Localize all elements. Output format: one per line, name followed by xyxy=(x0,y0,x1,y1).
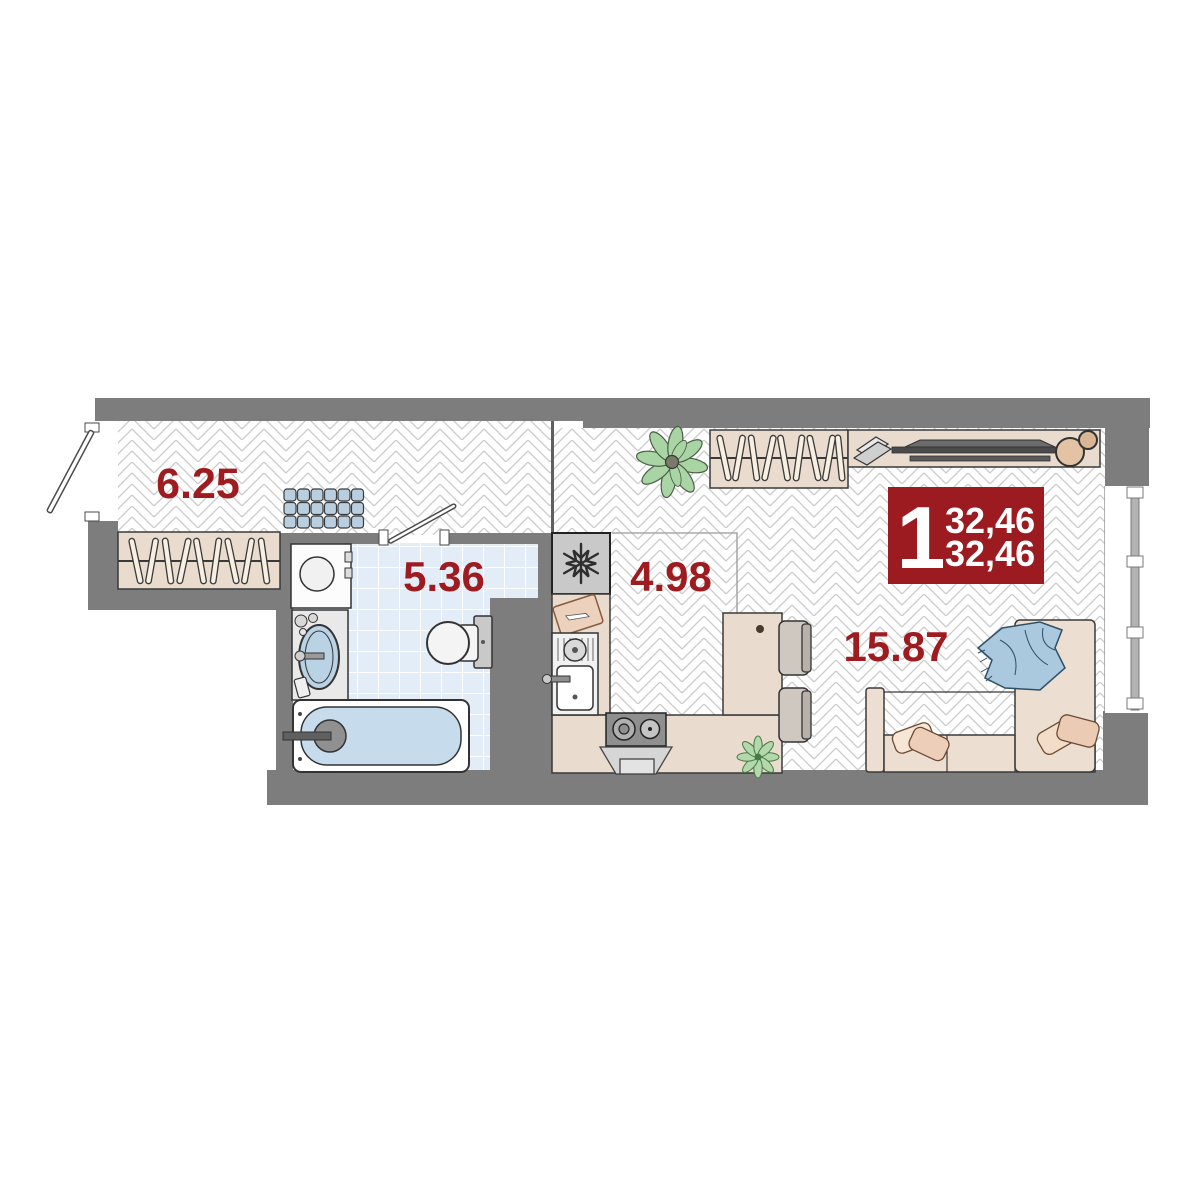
door-frame-tick xyxy=(85,512,99,521)
soap-dish xyxy=(300,629,307,636)
tv-console xyxy=(848,430,1100,467)
stove xyxy=(606,713,666,746)
dining-chair xyxy=(779,621,811,675)
window-frame xyxy=(1131,489,1139,710)
plant-icon xyxy=(737,736,779,778)
floor-plan-drawing: 1 32,46 32,46 6.25 5.36 4.98 15.87 xyxy=(0,0,1200,1200)
door-frame-tick xyxy=(440,530,449,545)
room-label-kitchen: 4.98 xyxy=(630,553,712,600)
soap-dish xyxy=(309,614,318,623)
bathtub xyxy=(283,700,469,772)
room-label-hallway: 6.25 xyxy=(156,460,240,508)
dining-table xyxy=(723,613,782,715)
window xyxy=(1105,486,1149,713)
coat-rack xyxy=(118,532,280,589)
entry-door-leaf xyxy=(47,430,95,514)
soap-dish xyxy=(295,615,307,627)
floor-plan: 1 32,46 32,46 6.25 5.36 4.98 15.87 xyxy=(0,0,1200,1200)
refrigerator xyxy=(552,533,610,594)
dining-chair xyxy=(779,688,811,742)
tv xyxy=(892,440,1068,461)
tub-faucet xyxy=(283,732,331,740)
wardrobe xyxy=(710,430,848,488)
washing-machine xyxy=(291,544,352,608)
room-label-living: 15.87 xyxy=(843,623,948,670)
badge-area-living: 32,46 xyxy=(945,533,1035,574)
table-knob xyxy=(756,625,764,633)
sofa-armrest xyxy=(866,688,884,772)
room-label-bathroom: 5.36 xyxy=(403,553,485,600)
badge-rooms-count: 1 xyxy=(897,488,946,587)
door-frame-tick xyxy=(379,530,388,545)
entry-door xyxy=(47,423,99,521)
apartment-badge: 1 32,46 32,46 xyxy=(888,487,1044,587)
bathroom-sink xyxy=(292,610,348,700)
